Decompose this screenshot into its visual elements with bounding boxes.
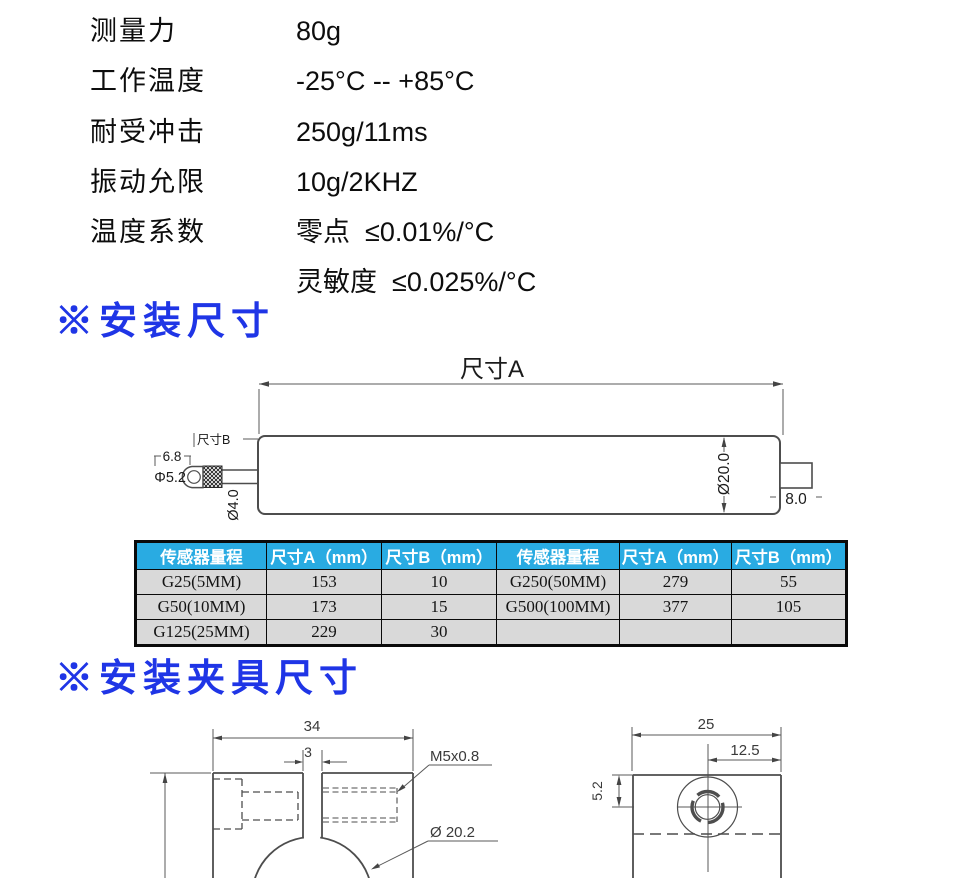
probe-tip-ball xyxy=(188,471,201,484)
probe-shaft xyxy=(222,470,258,484)
hole-offset-label: 5.2 xyxy=(589,781,605,801)
table-header-cell: 尺寸A（mm） xyxy=(267,542,382,570)
hidden-counterbore xyxy=(213,779,298,829)
side-width-label: 25 xyxy=(698,716,715,733)
table-cell: 105 xyxy=(732,595,847,620)
table-cell: G500(100MM) xyxy=(497,595,620,620)
slot-width-label: 3 xyxy=(304,744,312,760)
spec-value: 零点 ≤0.01%/°C xyxy=(296,215,494,249)
spec-list: 测量力 80g 工作温度 -25°C -- +85°C 耐受冲击 250g/11… xyxy=(90,14,536,316)
dim-a-label: 尺寸A xyxy=(460,356,524,383)
dim-a-lines xyxy=(259,384,783,435)
dim-5-2-lines xyxy=(612,775,634,807)
tail-connector-outline xyxy=(780,463,812,488)
section-title-mounting-dimensions: ※安装尺寸 xyxy=(55,301,275,343)
table-cell: 15 xyxy=(382,595,497,620)
thread-leader-arrow xyxy=(397,784,406,792)
table-header-cell: 尺寸B（mm） xyxy=(732,542,847,570)
spec-row: 振动允限 10g/2KHZ xyxy=(90,165,536,215)
probe-knurl xyxy=(203,466,222,488)
spec-row: 温度系数 零点 ≤0.01%/°C xyxy=(90,215,536,265)
table-row: G25(5MM) 153 10 G250(50MM) 279 55 xyxy=(136,570,847,595)
table-cell xyxy=(497,620,620,646)
table-cell: 153 xyxy=(267,570,382,595)
sensor-body-outline xyxy=(258,436,780,514)
table-cell: 173 xyxy=(267,595,382,620)
table-cell: 55 xyxy=(732,570,847,595)
hole-centerlines xyxy=(677,744,742,872)
knurl-length-label: 6.8 xyxy=(163,449,182,464)
table-cell: 10 xyxy=(382,570,497,595)
table-cell: 279 xyxy=(620,570,732,595)
table-cell: 30 xyxy=(382,620,497,646)
spec-label: 耐受冲击 xyxy=(90,115,296,149)
table-cell: G50(10MM) xyxy=(136,595,267,620)
spec-value: 灵敏度 ≤0.025%/°C xyxy=(296,265,536,299)
table-row: G125(25MM) 229 30 xyxy=(136,620,847,646)
spec-label: 测量力 xyxy=(90,14,296,48)
section-title-fixture-dimensions: ※安装夹具尺寸 xyxy=(55,658,363,700)
datasheet-page: 测量力 80g 工作温度 -25°C -- +85°C 耐受冲击 250g/11… xyxy=(0,0,960,878)
size-table: 传感器量程 尺寸A（mm） 尺寸B（mm） 传感器量程 尺寸A（mm） 尺寸B（… xyxy=(134,540,848,647)
bore-diameter-label: Ø 20.2 xyxy=(430,824,475,841)
shaft-diameter-label: Ø4.0 xyxy=(226,489,242,520)
table-cell: 377 xyxy=(620,595,732,620)
spec-label: 工作温度 xyxy=(90,64,296,98)
spec-label: 振动允限 xyxy=(90,165,296,199)
table-cell: G25(5MM) xyxy=(136,570,267,595)
table-cell xyxy=(732,620,847,646)
table-row: G50(10MM) 173 15 G500(100MM) 377 105 xyxy=(136,595,847,620)
table-header-row: 传感器量程 尺寸A（mm） 尺寸B（mm） 传感器量程 尺寸A（mm） 尺寸B（… xyxy=(136,542,847,570)
bore-leader xyxy=(374,841,498,868)
slot-opening-mask xyxy=(304,829,320,839)
left-height-arrow xyxy=(163,773,168,783)
left-fixture-outline xyxy=(213,773,413,878)
dim-3-lines xyxy=(284,750,347,771)
spec-value: -25°C -- +85°C xyxy=(296,64,474,98)
spec-value: 10g/2KHZ xyxy=(296,165,418,199)
fixture-width-label: 34 xyxy=(304,718,321,735)
spec-row: 工作温度 -25°C -- +85°C xyxy=(90,64,536,114)
dim-3-arrows xyxy=(295,760,330,764)
dim-34-lines xyxy=(213,729,413,771)
table-cell: G125(25MM) xyxy=(136,620,267,646)
thread-spec-label: M5x0.8 xyxy=(430,748,479,765)
tip-diameter-label: Φ5.2 xyxy=(154,470,186,486)
left-height-dim xyxy=(150,773,211,878)
spec-row: 测量力 80g xyxy=(90,14,536,64)
table-cell: G250(50MM) xyxy=(497,570,620,595)
bore-leader-arrow xyxy=(371,863,380,869)
slot-edges xyxy=(303,773,322,839)
hidden-threaded-hole xyxy=(323,788,397,822)
sensor-dimension-drawing: 尺寸A 尺寸B 6.8 Φ5.2 Ø4.0 Ø20.0 8.0 xyxy=(0,350,960,540)
bore-circle xyxy=(252,837,372,878)
spec-value: 80g xyxy=(296,14,341,48)
tail-length-label: 8.0 xyxy=(785,491,807,508)
table-header-cell: 尺寸A（mm） xyxy=(620,542,732,570)
spec-value: 250g/11ms xyxy=(296,115,428,149)
table-header-cell: 传感器量程 xyxy=(136,542,267,570)
spec-label: 温度系数 xyxy=(90,215,296,249)
dim-b-label: 尺寸B xyxy=(197,433,230,447)
table-cell: 229 xyxy=(267,620,382,646)
table-header-cell: 尺寸B（mm） xyxy=(382,542,497,570)
spec-row: 耐受冲击 250g/11ms xyxy=(90,115,536,165)
half-width-label: 12.5 xyxy=(730,742,759,759)
table-header-cell: 传感器量程 xyxy=(497,542,620,570)
fixture-dimension-drawing: 34 3 M5x0.8 Ø 20.2 25 12.5 5.2 xyxy=(0,700,960,878)
table-cell xyxy=(620,620,732,646)
body-diameter-label: Ø20.0 xyxy=(716,453,733,496)
